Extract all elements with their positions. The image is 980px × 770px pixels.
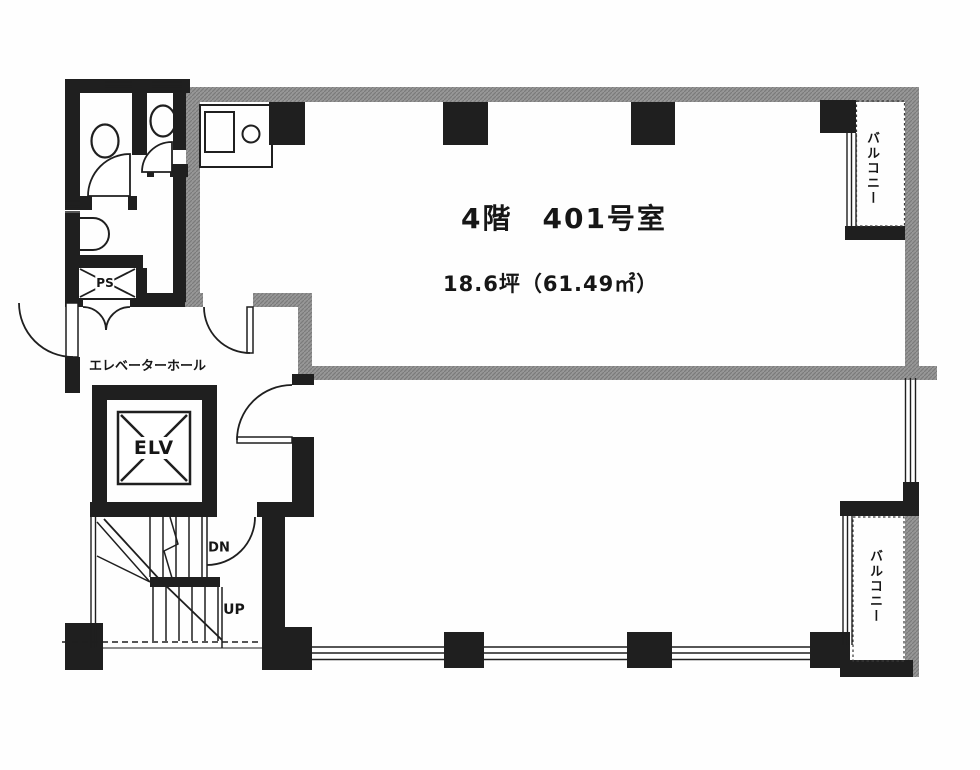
kitchen-counter: [200, 105, 272, 167]
kitchen-sink: [205, 112, 234, 152]
pipe-space-label: PS: [95, 276, 114, 290]
floorplan-drawing: [0, 0, 980, 770]
stairs-down-label: DN: [208, 541, 230, 556]
wash-basin: [80, 218, 109, 250]
toilet-left: [92, 125, 119, 158]
kitchen-burner: [243, 126, 260, 143]
gray-walls: [178, 87, 937, 677]
elevator-hall-label: エレベーターホール: [89, 355, 206, 374]
floorplan-canvas: 4階 401号室 18.6坪（61.49㎡） エレベーターホール ELV PS …: [0, 0, 980, 770]
stall-door-left: [88, 154, 130, 196]
stairs-up-label: UP: [223, 602, 245, 618]
room-title: 4階 401号室: [461, 197, 667, 237]
balcony-label-top: バルコニー: [862, 131, 881, 206]
toilet-right: [151, 106, 176, 137]
elevator-label: ELV: [132, 437, 176, 459]
balcony-label-bottom: バルコニー: [865, 549, 884, 624]
room-area: 18.6坪（61.49㎡）: [443, 268, 658, 298]
